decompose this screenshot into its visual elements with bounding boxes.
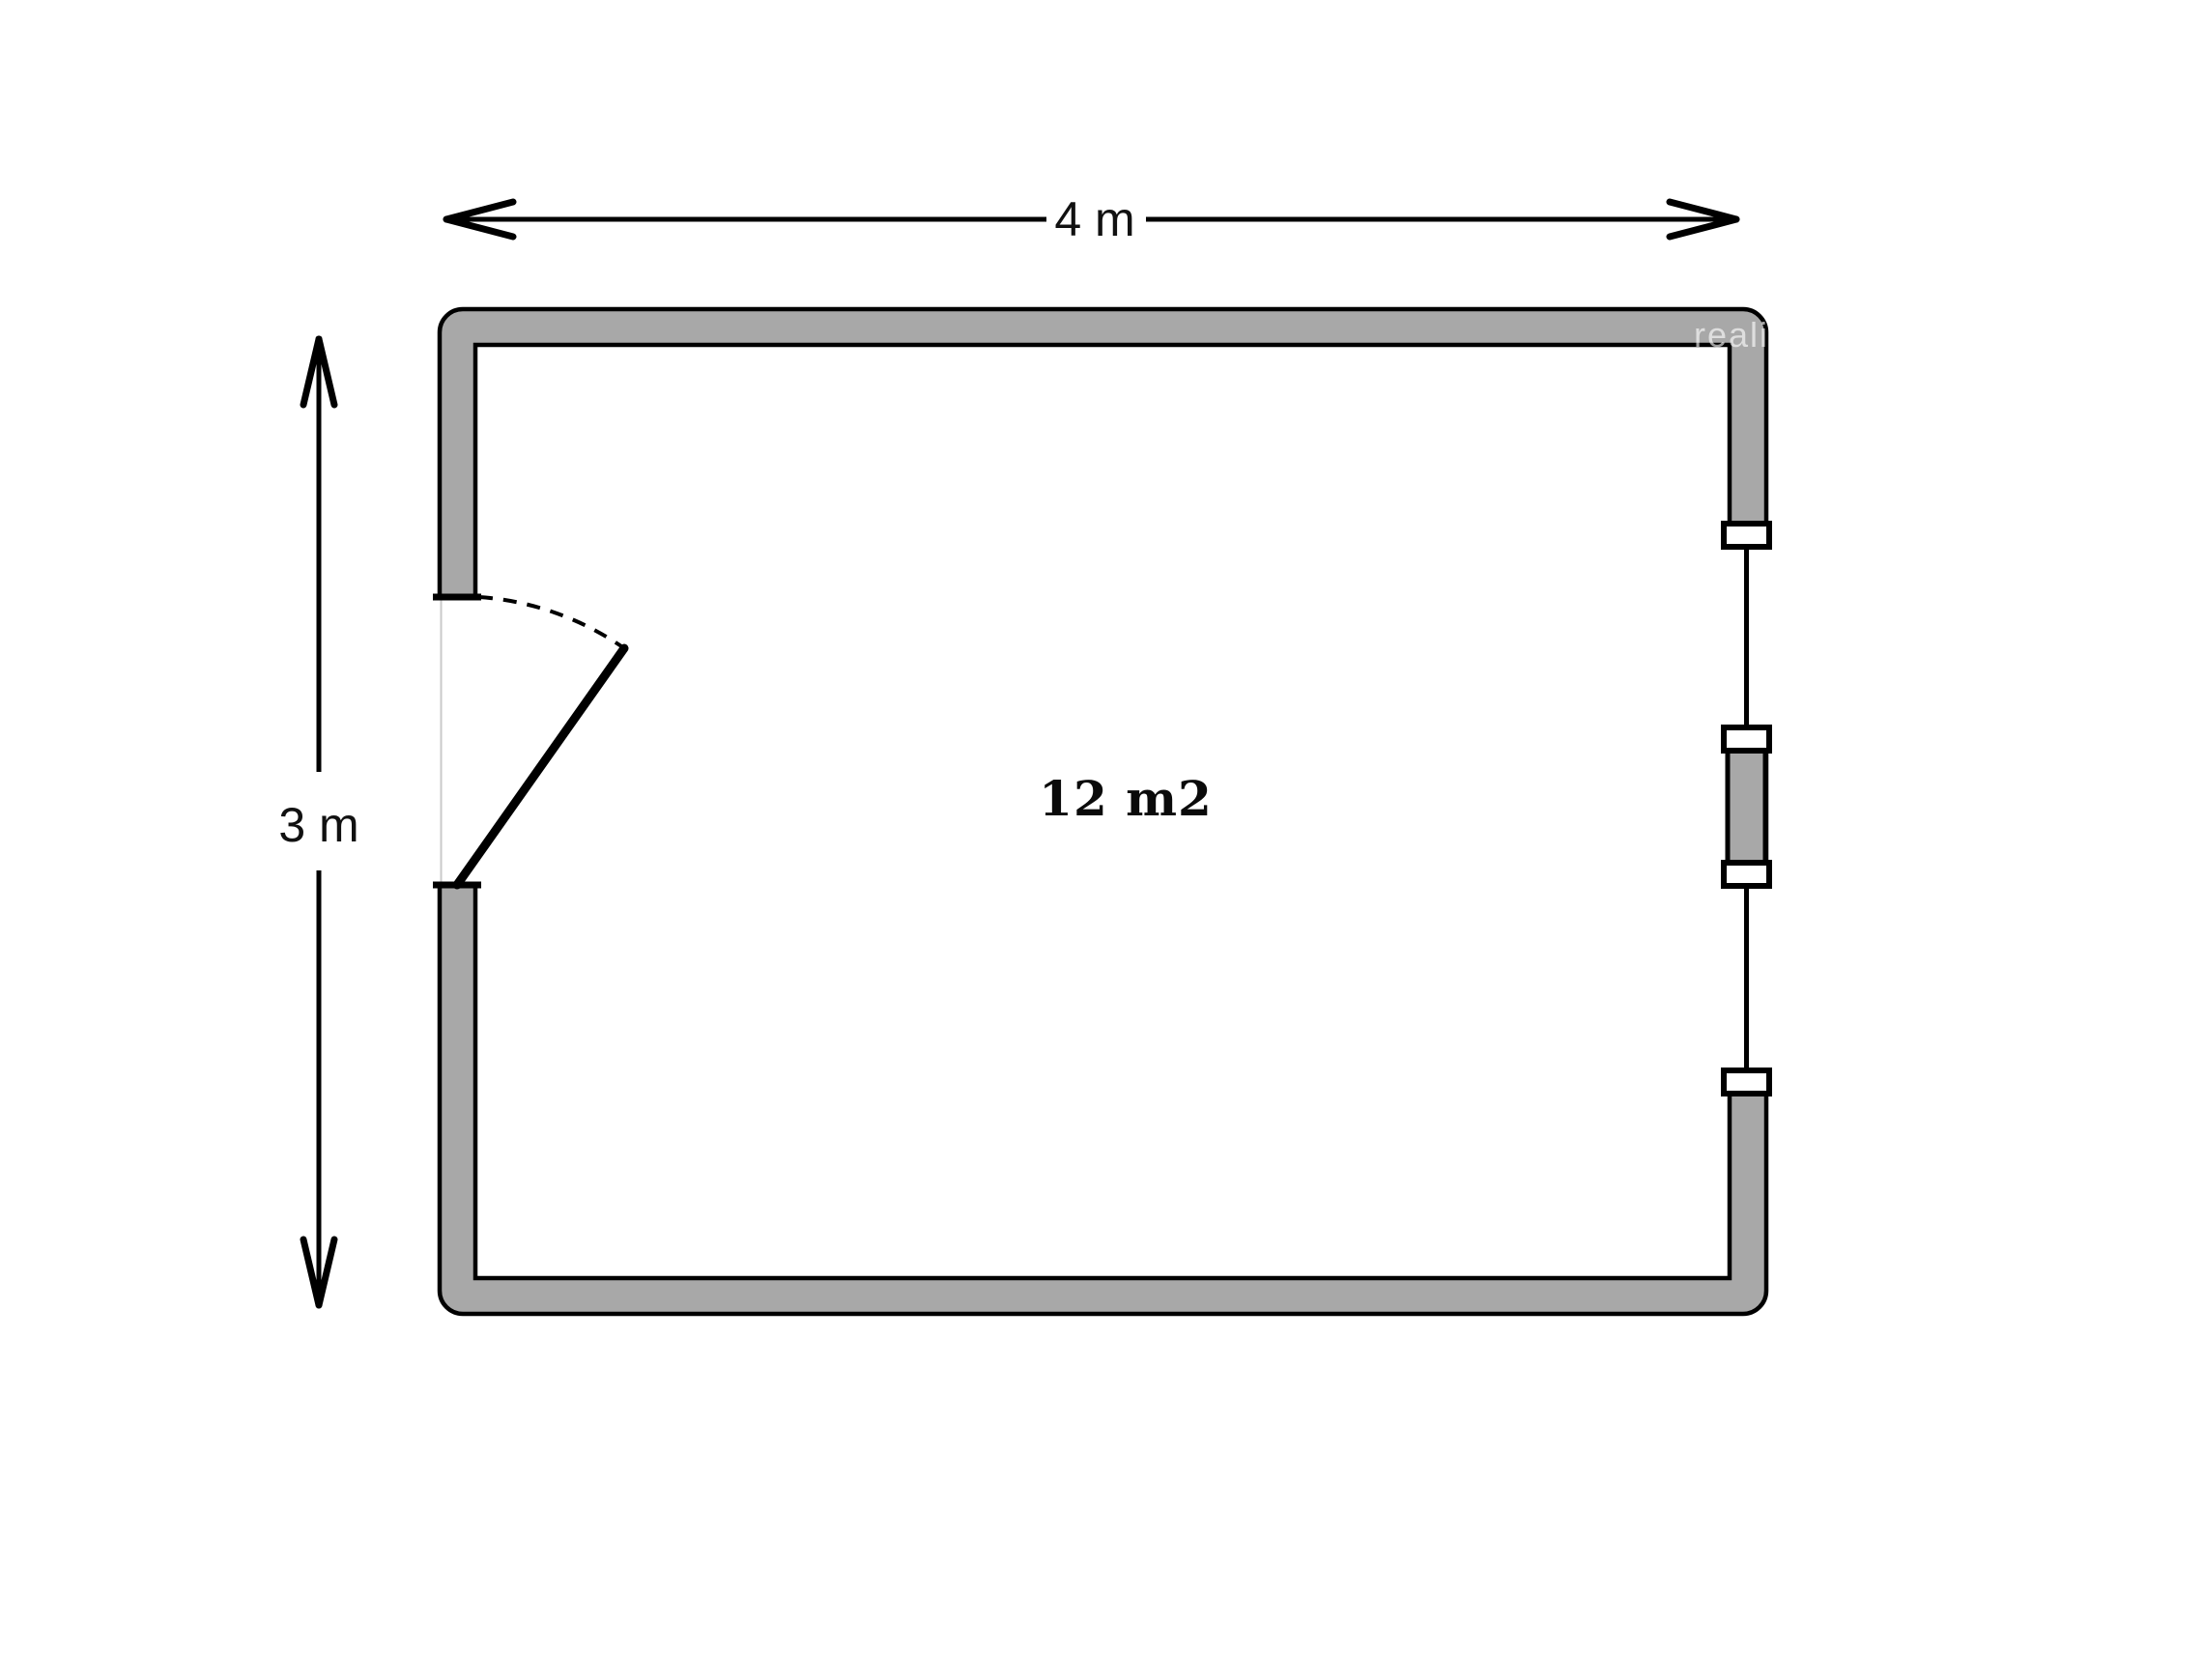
windows [1721,523,1772,1095]
height-label: 3 m [278,798,358,852]
wall-pier-between-windows [1728,744,1765,872]
arrowhead-right-icon [1670,219,1736,237]
window-2-sill-top [1724,863,1769,886]
arrowhead-left-icon [446,219,513,237]
width-label: 4 m [1054,192,1134,246]
window-1-sill-top [1724,524,1769,547]
floor-plan-page: realit [0,0,2204,1680]
floor-plan-canvas: realit [0,0,2204,1680]
window-1-sill-bottom [1724,727,1769,751]
area-label: 12 m2 [1039,770,1213,827]
watermark: realit [1694,315,1781,355]
window-2-sill-bottom [1724,1070,1769,1094]
arrowhead-left-icon [446,202,513,219]
height-dimension-arrow: 3 m [278,339,358,1305]
arrowhead-right-icon [1670,202,1736,219]
width-dimension-arrow: 4 m [446,192,1736,246]
